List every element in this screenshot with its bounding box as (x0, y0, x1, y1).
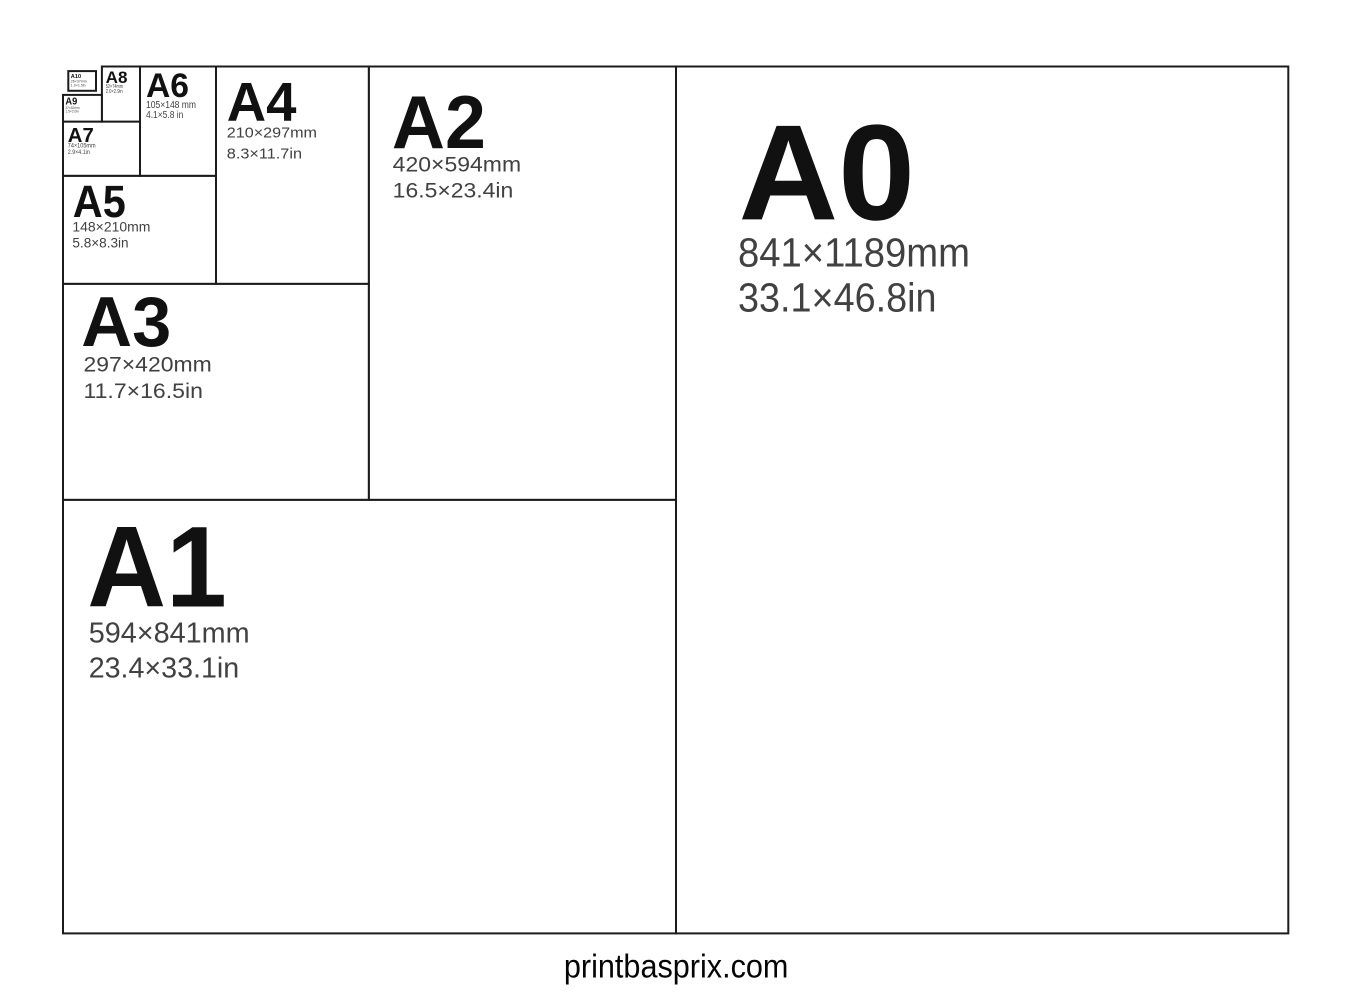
svg-text:11.7×16.5in: 11.7×16.5in (84, 379, 203, 403)
svg-text:210×297mm: 210×297mm (227, 126, 317, 142)
svg-text:A4: A4 (227, 71, 297, 133)
svg-text:2.0×2.9in: 2.0×2.9in (106, 89, 123, 95)
svg-text:2.9×4.1in: 2.9×4.1in (68, 150, 90, 156)
svg-text:4.1×5.8 in: 4.1×5.8 in (146, 110, 183, 121)
svg-text:148×210mm: 148×210mm (72, 219, 150, 234)
svg-text:A3: A3 (81, 282, 171, 361)
svg-text:74×105mm: 74×105mm (68, 144, 96, 150)
svg-text:A0: A0 (739, 96, 916, 248)
svg-text:1.0×1.5in: 1.0×1.5in (71, 84, 86, 88)
svg-text:841×1189mm: 841×1189mm (738, 229, 970, 275)
svg-text:A1: A1 (87, 504, 227, 632)
svg-text:297×420mm: 297×420mm (84, 352, 212, 376)
svg-text:16.5×23.4in: 16.5×23.4in (393, 178, 514, 202)
svg-text:420×594mm: 420×594mm (393, 152, 521, 176)
svg-text:5.8×8.3in: 5.8×8.3in (72, 235, 128, 250)
svg-text:33.1×46.8in: 33.1×46.8in (738, 275, 937, 321)
svg-text:8.3×11.7in: 8.3×11.7in (227, 146, 302, 162)
svg-text:23.4×33.1in: 23.4×33.1in (89, 653, 240, 685)
svg-text:1.5×2.0in: 1.5×2.0in (65, 109, 79, 114)
svg-text:printbasprix.com: printbasprix.com (564, 948, 789, 985)
svg-text:594×841mm: 594×841mm (89, 618, 250, 650)
